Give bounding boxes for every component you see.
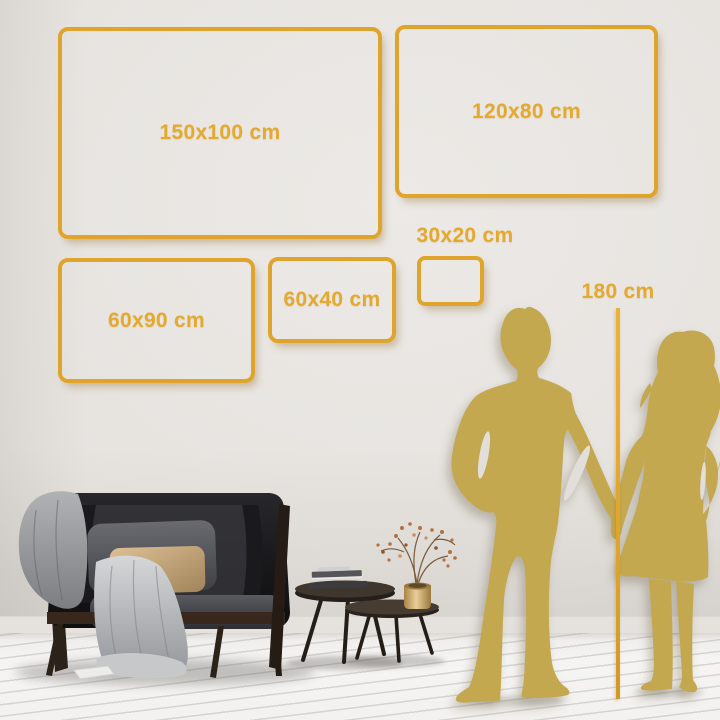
table-small-legs (357, 611, 432, 661)
books-stack (309, 566, 368, 589)
size-frame-60x90: 60x90 cm (58, 258, 255, 383)
height-reference-line (616, 308, 620, 699)
couple-silhouette-illustration (437, 293, 720, 713)
woman-legs (641, 579, 673, 691)
table-shadow (345, 655, 445, 667)
woman-silhouette (611, 330, 720, 581)
size-frame-120x80: 120x80 cm (395, 25, 658, 198)
woman-legs (676, 581, 697, 692)
vase-opening (409, 583, 427, 588)
man-silhouette (451, 307, 623, 703)
size-frame-150x100: 150x100 cm (58, 27, 382, 239)
size-label-120x80: 120x80 cm (472, 100, 581, 124)
sofa (19, 491, 290, 679)
size-label-30x20: 30x20 cm (406, 224, 524, 248)
living-room-illustration (0, 480, 460, 720)
size-label-60x40: 60x40 cm (284, 288, 381, 312)
size-guide-scene: 150x100 cm 120x80 cm 60x90 cm 60x40 cm 3… (0, 0, 720, 720)
gray-blanket (19, 491, 88, 609)
size-frame-60x40: 60x40 cm (268, 257, 396, 343)
size-label-150x100: 150x100 cm (160, 121, 281, 145)
size-label-60x90: 60x90 cm (108, 309, 205, 333)
